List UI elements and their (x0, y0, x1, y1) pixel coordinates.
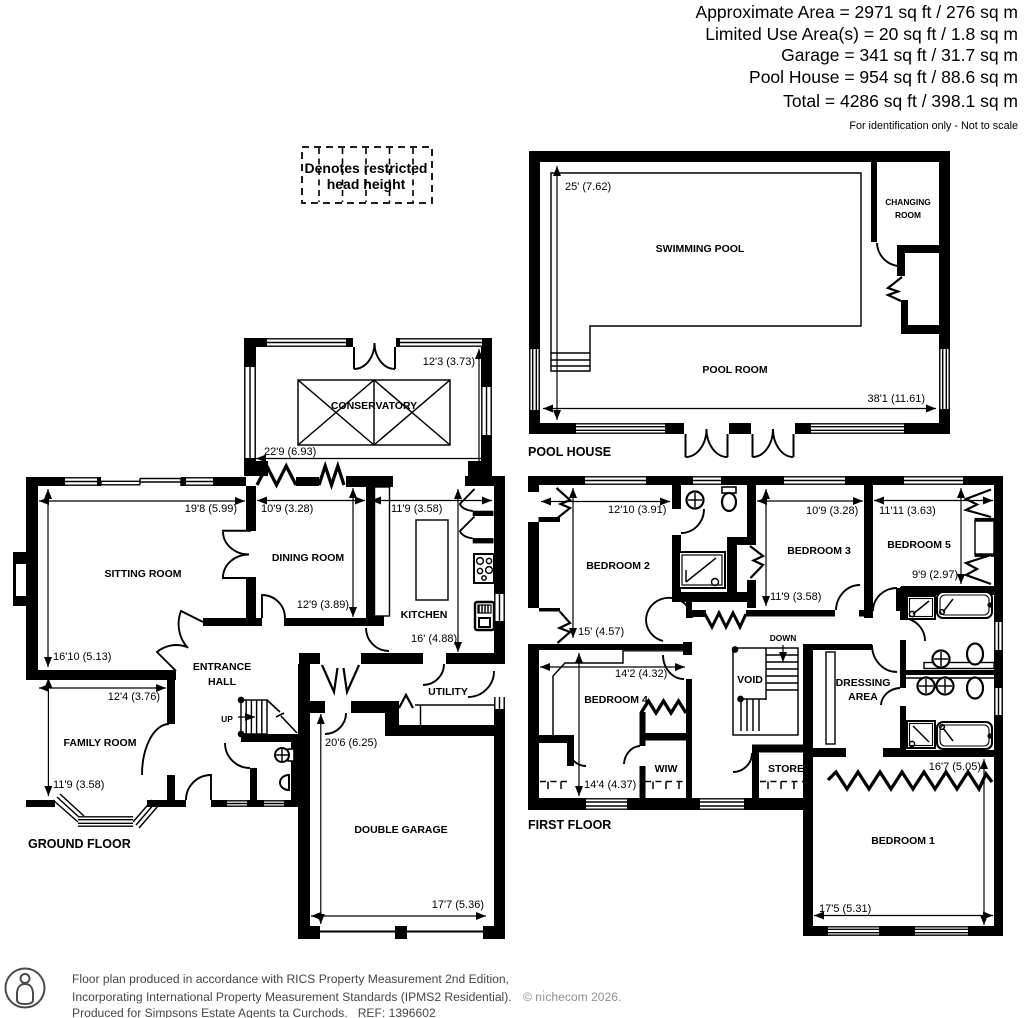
svg-text:ROOM: ROOM (895, 210, 921, 220)
svg-text:head height: head height (327, 176, 406, 192)
svg-text:VOID: VOID (737, 674, 763, 686)
svg-text:16'10 (5.13): 16'10 (5.13) (53, 651, 111, 663)
svg-text:© nı̇checom 2026.: © nı̇checom 2026. (523, 990, 621, 1004)
svg-text:15' (4.57): 15' (4.57) (578, 626, 624, 638)
svg-text:FAMILY ROOM: FAMILY ROOM (64, 737, 137, 749)
svg-text:Pool House = 954 sq ft / 88.6: Pool House = 954 sq ft / 88.6 sq m (749, 67, 1018, 87)
svg-text:Floor plan produced in accorda: Floor plan produced in accordance with R… (72, 972, 509, 986)
svg-text:19'8 (5.99): 19'8 (5.99) (185, 503, 237, 515)
svg-text:POOL HOUSE: POOL HOUSE (528, 445, 611, 459)
svg-text:UTILITY: UTILITY (428, 686, 468, 698)
svg-text:20'6 (6.25): 20'6 (6.25) (325, 737, 377, 749)
svg-text:SITTING ROOM: SITTING ROOM (105, 568, 182, 580)
svg-text:For identification only - Not: For identification only - Not to scale (849, 120, 1018, 132)
svg-text:12'3 (3.73): 12'3 (3.73) (423, 356, 475, 368)
svg-text:ENTRANCE: ENTRANCE (193, 661, 251, 673)
svg-text:SWIMMING POOL: SWIMMING POOL (656, 243, 745, 255)
svg-text:KITCHEN: KITCHEN (401, 609, 448, 621)
svg-text:10'9 (3.28): 10'9 (3.28) (261, 503, 313, 515)
svg-text:12'9 (3.89): 12'9 (3.89) (297, 599, 349, 611)
svg-text:BEDROOM 4: BEDROOM 4 (584, 694, 648, 706)
svg-text:STORE: STORE (768, 763, 804, 775)
svg-text:CHANGING: CHANGING (885, 197, 931, 207)
svg-text:14'4 (4.37): 14'4 (4.37) (584, 779, 636, 791)
svg-text:12'4 (3.76): 12'4 (3.76) (108, 691, 160, 703)
svg-text:DOUBLE GARAGE: DOUBLE GARAGE (354, 824, 447, 836)
svg-text:Total = 4286 sq ft / 398.1 sq: Total = 4286 sq ft / 398.1 sq m (783, 91, 1018, 111)
svg-text:Denotes restricted: Denotes restricted (305, 160, 428, 176)
svg-text:Incorporating International Pr: Incorporating International Property Mea… (72, 990, 512, 1004)
svg-text:11'9 (3.58): 11'9 (3.58) (391, 503, 442, 515)
svg-text:Approximate Area = 2971 sq ft: Approximate Area = 2971 sq ft / 276 sq m (696, 2, 1018, 22)
svg-text:DINING ROOM: DINING ROOM (272, 552, 345, 564)
svg-text:BEDROOM 2: BEDROOM 2 (586, 560, 650, 572)
svg-text:CONSERVATORY: CONSERVATORY (331, 400, 417, 412)
svg-text:12'10 (3.91): 12'10 (3.91) (608, 504, 666, 516)
svg-text:11'9 (3.58): 11'9 (3.58) (53, 779, 104, 791)
svg-text:WIW: WIW (655, 763, 678, 775)
svg-text:HALL: HALL (208, 676, 237, 688)
svg-text:UP: UP (221, 714, 233, 724)
svg-text:22'9 (6.93): 22'9 (6.93) (264, 446, 316, 458)
svg-text:Produced for Simpsons Estate A: Produced for Simpsons Estate Agents ta C… (72, 1006, 436, 1018)
svg-text:BEDROOM 3: BEDROOM 3 (787, 545, 851, 557)
svg-text:Garage = 341 sq ft / 31.7 sq m: Garage = 341 sq ft / 31.7 sq m (781, 45, 1018, 65)
svg-text:14'2 (4.32): 14'2 (4.32) (615, 668, 667, 680)
svg-text:17'7 (5.36): 17'7 (5.36) (432, 899, 484, 911)
svg-text:16'7 (5.05): 16'7 (5.05) (929, 761, 981, 773)
svg-text:AREA: AREA (848, 691, 878, 703)
svg-text:11'11 (3.63): 11'11 (3.63) (879, 505, 936, 517)
svg-text:POOL ROOM: POOL ROOM (702, 364, 767, 376)
svg-text:BEDROOM 1: BEDROOM 1 (871, 835, 935, 847)
svg-text:FIRST FLOOR: FIRST FLOOR (528, 818, 611, 832)
svg-text:11'9 (3.58): 11'9 (3.58) (770, 591, 821, 603)
svg-text:38'1 (11.61): 38'1 (11.61) (867, 393, 925, 405)
svg-text:DRESSING: DRESSING (836, 677, 891, 689)
svg-text:GROUND FLOOR: GROUND FLOOR (28, 837, 131, 851)
svg-text:9'9 (2.97): 9'9 (2.97) (912, 569, 958, 581)
svg-text:BEDROOM 5: BEDROOM 5 (887, 539, 951, 551)
svg-text:16' (4.88): 16' (4.88) (411, 633, 457, 645)
svg-text:17'5 (5.31): 17'5 (5.31) (819, 903, 871, 915)
svg-text:DOWN: DOWN (770, 633, 797, 643)
svg-text:10'9 (3.28): 10'9 (3.28) (806, 505, 858, 517)
svg-text:25' (7.62): 25' (7.62) (565, 181, 611, 193)
svg-text:Limited Use Area(s) = 20 sq ft: Limited Use Area(s) = 20 sq ft / 1.8 sq … (705, 24, 1018, 44)
